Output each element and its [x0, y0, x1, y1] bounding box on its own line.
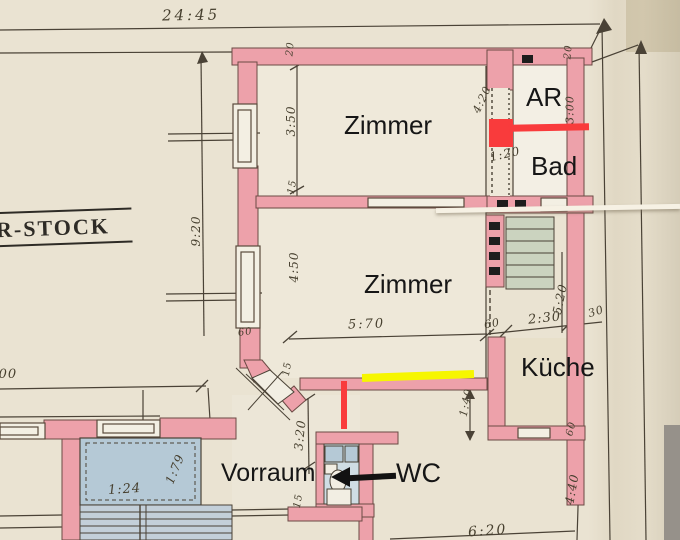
dim-lift-note: 1:24: [108, 482, 142, 497]
dim-zimmer-top-height: 3:50: [285, 99, 297, 143]
dim-wall-20-right: 20: [563, 40, 575, 65]
dim-wall-20-top: 20: [285, 37, 297, 62]
room-label-wc: WC: [396, 460, 441, 487]
red-square-annotation: [489, 119, 513, 147]
dim-zimmer-mid-width: 5:70: [348, 317, 386, 331]
floor-plan-photo: R-STOCK 24:45 9:20 3:50 20 15 4:20 1:20 …: [0, 0, 680, 540]
red-vertical-line-annotation: [341, 381, 347, 429]
dim-depth-left: 9:20: [190, 209, 202, 253]
wc-arrow-head: [331, 467, 350, 487]
main-stairs: [80, 505, 232, 540]
room-label-ar: AR: [526, 84, 562, 110]
room-label-vorraum: Vorraum: [221, 461, 315, 486]
dim-total-width: 24:45: [162, 7, 220, 23]
floor-plan-drawing: [0, 0, 680, 540]
red-line-annotation: [509, 123, 589, 131]
room-label-zimmer-top: Zimmer: [344, 112, 432, 138]
service-stair: [506, 217, 554, 289]
room-label-bad: Bad: [531, 153, 577, 179]
dim-zimmer-mid-height: 4:50: [288, 245, 300, 289]
dim-bottom-width: 6:20: [468, 523, 508, 540]
dim-left-400: 4:00: [0, 368, 17, 381]
floor-stamp: R-STOCK: [0, 207, 133, 247]
dim-niche-60: 60: [483, 317, 501, 331]
room-label-zimmer-mid: Zimmer: [364, 271, 452, 297]
dim-window-60: 60: [237, 327, 253, 339]
room-label-kueche: Küche: [521, 354, 595, 380]
